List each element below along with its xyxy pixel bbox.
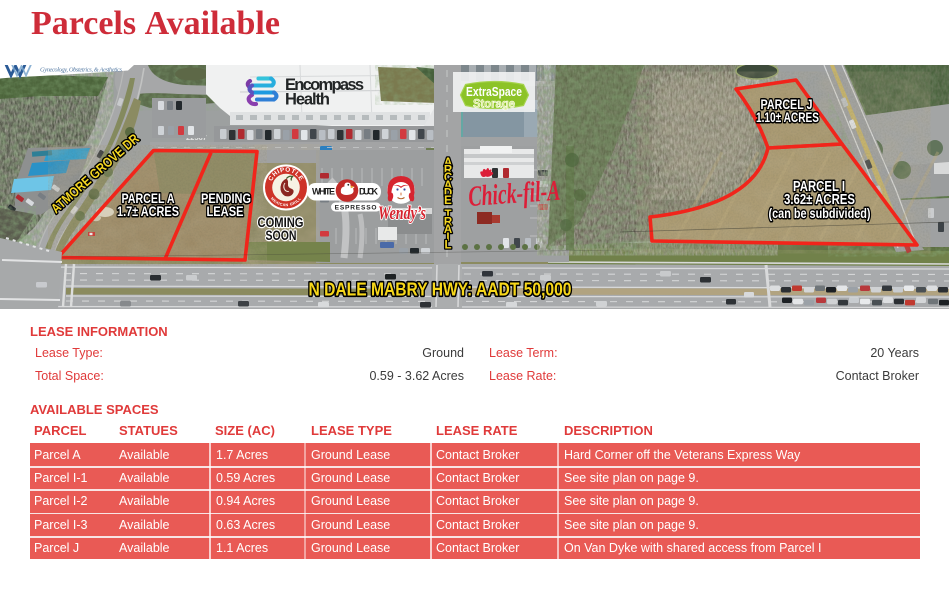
svg-text:N DALE MABRY HWY: AADT 50,000: N DALE MABRY HWY: AADT 50,000 [309, 279, 572, 300]
svg-text:1.7± ACRES: 1.7± ACRES [117, 203, 179, 219]
svg-text:Wendy’s: Wendy’s [378, 203, 426, 224]
svg-text:Storage: Storage [473, 97, 515, 111]
svg-text:1.10± ACRES: 1.10± ACRES [756, 110, 819, 125]
svg-text:LEASE: LEASE [207, 203, 244, 219]
svg-text:(can be subdivided): (can be subdivided) [769, 205, 871, 221]
svg-text:Chick-fil-A: Chick-fil-A [467, 175, 561, 213]
svg-text:Gynecology, Obstetrics, & Aest: Gynecology, Obstetrics, & Aesthetics [40, 67, 123, 74]
svg-text:WHITE: WHITE [312, 187, 335, 197]
svg-text:L: L [444, 239, 451, 251]
svg-text:DUCK: DUCK [359, 187, 379, 197]
svg-text:ESPRESSO: ESPRESSO [335, 205, 378, 212]
svg-text:Health: Health [285, 91, 330, 109]
svg-text:SOON: SOON [266, 228, 297, 243]
svg-text:E: E [444, 195, 452, 207]
